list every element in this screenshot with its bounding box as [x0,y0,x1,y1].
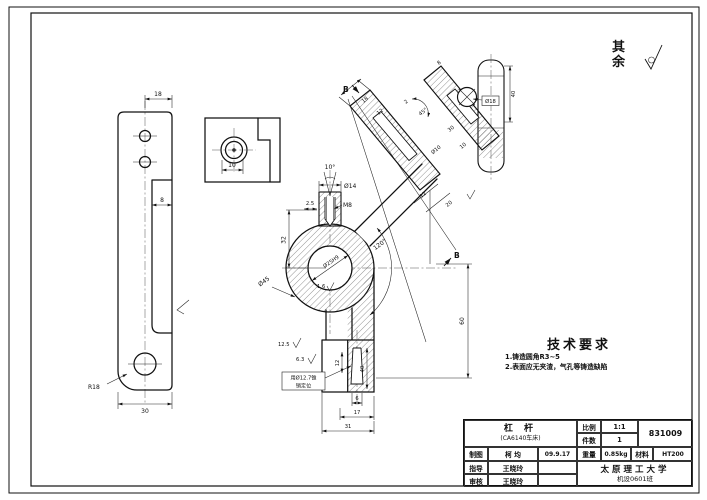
surface-finish-symbol [645,45,662,69]
dim-arm-gap2: 2 [403,99,409,106]
dim-height32: 32 [281,236,288,244]
weight-value: 0.85kg [601,447,631,461]
school-name: 太原理工大学 [600,465,669,476]
dim-arm-len20: 20 [445,200,454,209]
dim-arm-hole10: Ø10 [430,144,443,156]
dim-left-top-width: 18 [154,91,162,98]
scale-label: 比例 [577,420,601,433]
dim-base-width: 31 [345,424,352,430]
dim-step: 2.5 [306,201,314,207]
dim-arm-len10: 10 [459,142,468,151]
drawing-number: 831009 [638,420,693,447]
dim-section-offset: 10 [228,162,236,169]
left-view: 18 8 30 R18 [88,91,189,415]
school-cell: 太原理工大学 机设0601班 [577,461,693,487]
roughness-check-icon [293,338,301,348]
title-block: 杠 杆 (CA6140车床) 比例 1:1 件数 1 831009 制图 柯 均… [463,419,692,486]
dim-pad40: 40 [360,366,366,373]
drawn-label: 制图 [464,447,488,461]
class-name: 机设0601班 [617,475,653,483]
dim-end-w8: 8 [436,60,442,67]
roughness-check-icon [467,190,475,199]
dim-boss18: Ø18 [485,98,496,105]
dim-boss-dia: Ø14 [344,183,357,190]
dim-left-radius: R18 [88,384,100,391]
qty-label: 件数 [577,433,601,447]
roughness-check-icon [177,300,189,314]
drawn-date: 09.9.17 [538,447,577,461]
material-label: 材料 [631,447,653,461]
dim-ra-face: 6.3 [296,357,304,363]
part-name: 杠 杆 [504,424,537,435]
dim-hub-dia: Ø45 [257,275,271,288]
advisor-date-cell [538,461,577,474]
dim-left-bottom-width: 30 [141,408,149,415]
dim-taper-angle: 10° [325,164,336,171]
drawing-sheet: 18 8 30 R18 10 [0,0,707,500]
dim-ra-hole: 1.6 [317,284,325,290]
part-name-cell: 杠 杆 (CA6140车床) [464,420,577,447]
surface-note: 其余 [612,40,627,70]
dim-arm-len30: 30 [447,125,456,134]
note-taper-line2: 销定位 [296,382,312,390]
section-label-b-right: B [454,251,460,260]
checker-name: 王晓玲 [488,474,538,487]
drawn-by: 柯 均 [488,447,538,461]
advisor-name: 王晓玲 [488,461,538,474]
part-model: (CA6140车床) [500,435,540,443]
scale-value: 1:1 [601,420,638,433]
tech-requirements-title: 技术要求 [547,334,700,353]
note-taper-line1: 用Ø12.7锥 [290,374,316,382]
advisor-label: 指导 [464,461,488,474]
main-view: 10° Ø14 M8 2.5 32 Ø45 Ø25H9 1.6 120° 用Ø1… [257,85,472,434]
tech-requirement-item: 1.铸造圆角R3~5 [505,353,700,363]
dim-thread: M8 [343,202,352,209]
roughness-check-icon [308,354,316,364]
dim-pad-width: 17 [354,410,361,416]
checker-date-cell [538,474,577,487]
material-value: HT200 [653,447,693,461]
qty-value: 1 [601,433,638,447]
tech-requirements: 技术要求 1.铸造圆角R3~5 2.表面应无夹渣，气孔等铸造缺陷 [505,334,700,372]
dim-pad12: 12 [335,360,341,367]
dim-end-h40: 40 [511,91,517,98]
tech-requirement-item: 2.表面应无夹渣，气孔等铸造缺陷 [505,363,700,373]
dim-pin-offset: 6 [355,396,358,402]
dim-height60: 60 [459,317,466,325]
boss-section-view: 10 [205,118,280,182]
checker-label: 审核 [464,474,488,487]
weight-label: 重量 [577,447,601,461]
dim-left-recess: 8 [160,197,164,204]
dim-ra-bottom: 12.5 [278,342,290,348]
